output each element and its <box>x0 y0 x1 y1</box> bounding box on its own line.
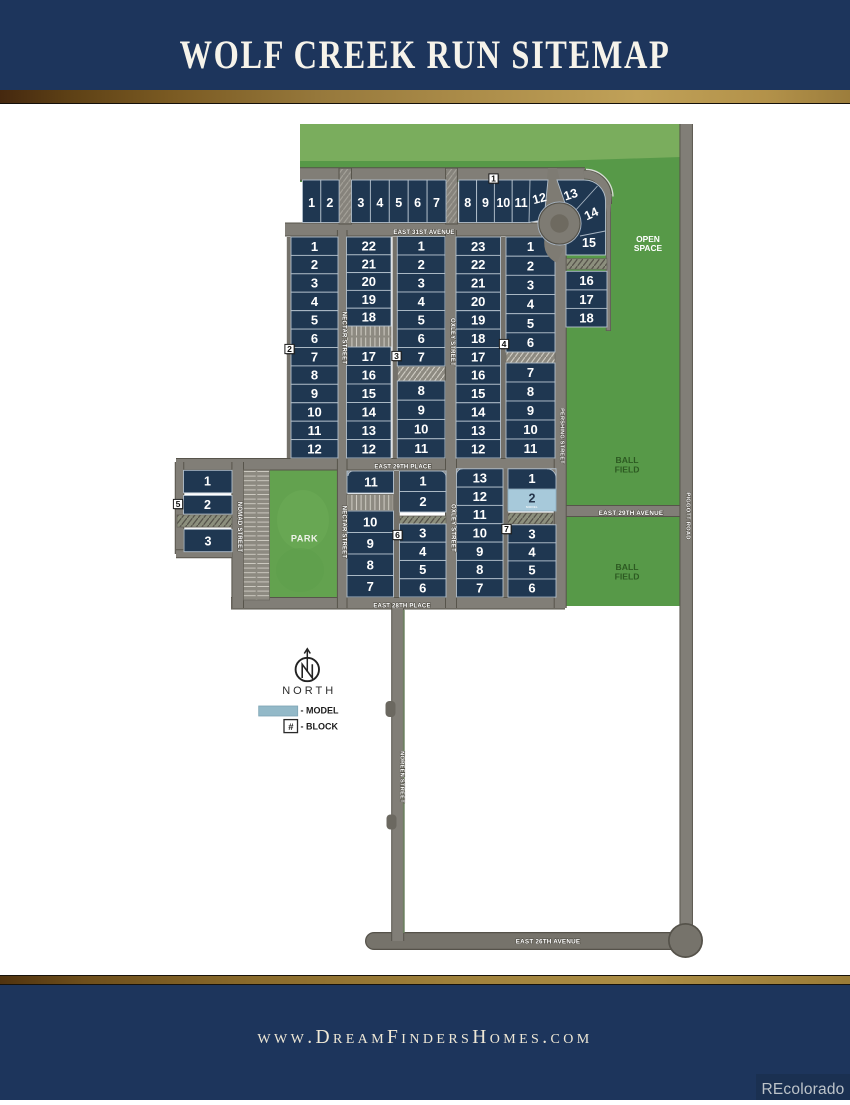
svg-text:22: 22 <box>471 257 485 272</box>
svg-text:8: 8 <box>527 384 534 399</box>
svg-text:15: 15 <box>471 386 485 401</box>
svg-text:3: 3 <box>527 278 534 293</box>
svg-text:13: 13 <box>473 471 487 486</box>
svg-text:5: 5 <box>311 313 318 328</box>
svg-text:NECTAR STREET: NECTAR STREET <box>340 312 346 365</box>
svg-text:5: 5 <box>176 499 181 509</box>
svg-text:7: 7 <box>418 349 425 364</box>
svg-text:16: 16 <box>579 273 593 288</box>
svg-text:18: 18 <box>579 310 593 325</box>
svg-text:18: 18 <box>471 331 485 346</box>
svg-text:4: 4 <box>528 545 536 560</box>
svg-text:1: 1 <box>419 474 426 489</box>
svg-text:BALL: BALL <box>616 562 639 572</box>
svg-text:12: 12 <box>307 441 321 456</box>
svg-text:17: 17 <box>362 349 376 364</box>
svg-text:EAST 29TH PLACE: EAST 29TH PLACE <box>374 464 431 470</box>
svg-text:2: 2 <box>311 257 318 272</box>
svg-text:22: 22 <box>362 239 376 254</box>
svg-text:2: 2 <box>326 196 333 210</box>
svg-text:EAST 31ST AVENUE: EAST 31ST AVENUE <box>393 230 454 236</box>
svg-text:18: 18 <box>362 310 376 325</box>
svg-text:6: 6 <box>311 331 318 346</box>
svg-text:2: 2 <box>529 492 536 506</box>
svg-text:NOMAD STREET: NOMAD STREET <box>236 502 242 553</box>
svg-text:3: 3 <box>357 196 364 210</box>
svg-text:PIGGOTT ROAD: PIGGOTT ROAD <box>685 492 691 539</box>
svg-text:7: 7 <box>476 580 483 595</box>
svg-text:7: 7 <box>433 196 440 210</box>
svg-text:1: 1 <box>528 471 535 486</box>
svg-text:5: 5 <box>419 562 426 577</box>
svg-text:5: 5 <box>528 563 535 578</box>
svg-text:9: 9 <box>311 386 318 401</box>
svg-text:3: 3 <box>419 526 426 541</box>
svg-text:8: 8 <box>464 196 471 210</box>
svg-text:6: 6 <box>418 331 425 346</box>
svg-text:7: 7 <box>367 579 374 594</box>
svg-text:20: 20 <box>471 294 485 309</box>
svg-text:OXLEY STREET: OXLEY STREET <box>449 318 455 366</box>
svg-text:2: 2 <box>418 257 425 272</box>
svg-text:6: 6 <box>419 581 426 596</box>
svg-text:PERSHING STREET: PERSHING STREET <box>559 408 565 464</box>
svg-text:10: 10 <box>363 514 377 529</box>
svg-text:10: 10 <box>473 526 487 541</box>
svg-text:MODEL: MODEL <box>526 505 538 509</box>
svg-text:3: 3 <box>528 526 535 541</box>
svg-text:11: 11 <box>524 441 538 456</box>
svg-text:11: 11 <box>473 507 487 522</box>
svg-text:#: # <box>288 721 294 732</box>
svg-text:7: 7 <box>504 524 509 534</box>
svg-text:4: 4 <box>376 196 383 210</box>
svg-text:5: 5 <box>527 316 534 331</box>
svg-text:15: 15 <box>362 386 376 401</box>
svg-text:2: 2 <box>419 494 426 509</box>
svg-text:4: 4 <box>527 297 535 312</box>
svg-text:EAST 26TH AVENUE: EAST 26TH AVENUE <box>516 939 580 946</box>
svg-text:16: 16 <box>362 367 376 382</box>
svg-text:- MODEL: - MODEL <box>301 706 339 716</box>
svg-text:11: 11 <box>308 423 322 438</box>
svg-text:8: 8 <box>311 368 318 383</box>
svg-text:1: 1 <box>204 475 211 489</box>
svg-text:16: 16 <box>471 368 485 383</box>
svg-text:20: 20 <box>362 274 376 289</box>
svg-text:3: 3 <box>418 275 425 290</box>
svg-text:2: 2 <box>287 344 292 354</box>
svg-text:1: 1 <box>308 196 315 210</box>
svg-text:8: 8 <box>367 557 374 572</box>
svg-text:10: 10 <box>523 422 537 437</box>
svg-text:12: 12 <box>471 441 485 456</box>
svg-text:10: 10 <box>307 405 321 420</box>
svg-text:NECTAR STREET: NECTAR STREET <box>340 506 346 559</box>
svg-text:EAST 29TH AVENUE: EAST 29TH AVENUE <box>599 510 663 517</box>
svg-text:PARK: PARK <box>291 534 318 544</box>
svg-text:13: 13 <box>362 423 376 438</box>
svg-text:14: 14 <box>362 404 377 419</box>
svg-text:2: 2 <box>527 258 534 273</box>
svg-text:9: 9 <box>367 536 374 551</box>
svg-text:4: 4 <box>418 294 426 309</box>
svg-text:NORTH: NORTH <box>282 685 336 697</box>
svg-text:FIELD: FIELD <box>615 465 640 475</box>
svg-text:11: 11 <box>364 475 378 490</box>
svg-text:12: 12 <box>362 441 376 456</box>
svg-text:12: 12 <box>473 489 487 504</box>
svg-text:1: 1 <box>527 239 534 254</box>
svg-text:OXLEY STREET: OXLEY STREET <box>449 504 455 552</box>
svg-text:21: 21 <box>362 256 376 271</box>
svg-text:5: 5 <box>395 196 402 210</box>
svg-text:5: 5 <box>418 312 425 327</box>
svg-text:10: 10 <box>414 422 428 437</box>
svg-text:21: 21 <box>471 276 485 291</box>
svg-text:7: 7 <box>527 365 534 380</box>
svg-text:BALL: BALL <box>616 455 639 465</box>
svg-text:6: 6 <box>528 581 535 596</box>
svg-text:8: 8 <box>418 383 425 398</box>
svg-text:4: 4 <box>419 544 427 559</box>
svg-text:1: 1 <box>418 238 425 253</box>
svg-text:4: 4 <box>311 294 319 309</box>
svg-text:3: 3 <box>394 351 399 361</box>
svg-text:6: 6 <box>395 530 400 540</box>
svg-text:10: 10 <box>496 196 510 210</box>
svg-text:15: 15 <box>582 236 596 250</box>
svg-text:3: 3 <box>311 276 318 291</box>
svg-text:11: 11 <box>514 196 527 210</box>
svg-text:9: 9 <box>476 544 483 559</box>
svg-text:23: 23 <box>471 239 485 254</box>
svg-text:19: 19 <box>471 313 485 328</box>
svg-text:9: 9 <box>418 403 425 418</box>
svg-text:EAST 28TH PLACE: EAST 28TH PLACE <box>373 604 430 610</box>
svg-text:SPACE: SPACE <box>634 243 663 253</box>
svg-text:8: 8 <box>476 562 483 577</box>
svg-text:2: 2 <box>204 498 211 512</box>
svg-text:1: 1 <box>311 239 318 254</box>
svg-text:4: 4 <box>502 339 507 349</box>
svg-text:14: 14 <box>471 405 486 420</box>
svg-text:13: 13 <box>471 423 485 438</box>
svg-text:6: 6 <box>527 335 534 350</box>
svg-text:19: 19 <box>362 292 376 307</box>
svg-text:7: 7 <box>311 349 318 364</box>
svg-text:11: 11 <box>414 441 428 456</box>
svg-text:1: 1 <box>491 174 496 184</box>
svg-text:- BLOCK: - BLOCK <box>301 722 339 732</box>
svg-text:17: 17 <box>471 349 485 364</box>
svg-text:9: 9 <box>527 403 534 418</box>
svg-text:17: 17 <box>579 292 593 307</box>
svg-text:FIELD: FIELD <box>615 572 640 582</box>
svg-text:3: 3 <box>205 534 212 548</box>
svg-text:9: 9 <box>482 196 489 210</box>
svg-text:NOREEN STREET: NOREEN STREET <box>399 751 405 803</box>
svg-text:6: 6 <box>414 196 421 210</box>
